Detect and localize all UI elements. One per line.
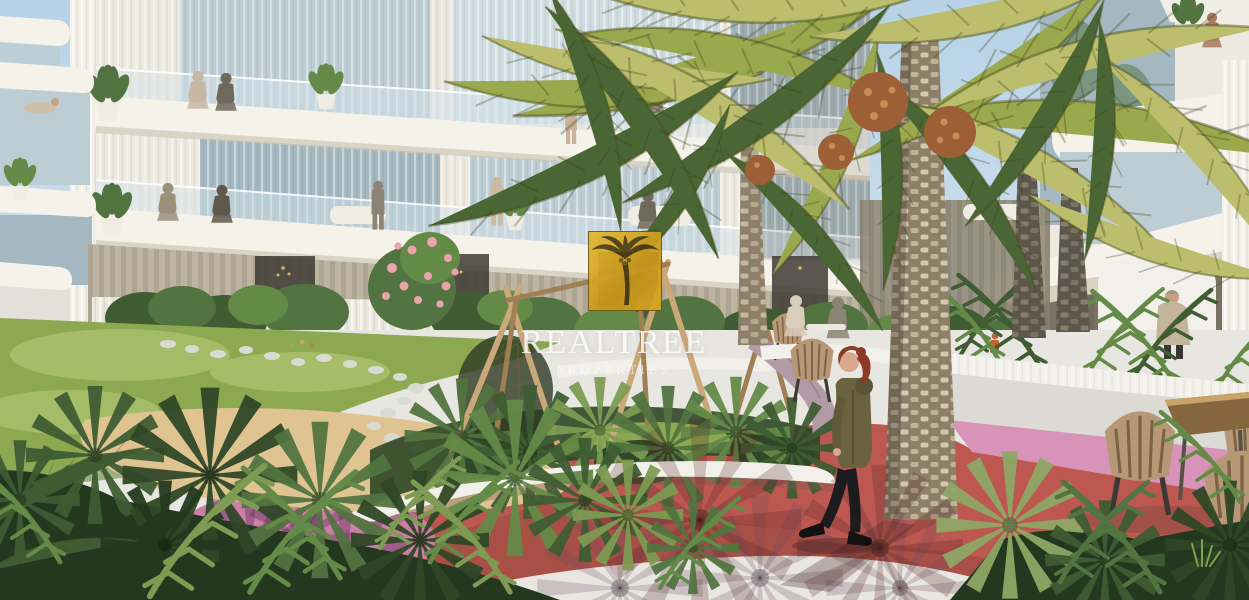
watermark-tagline: PROPERTIES [464, 362, 764, 378]
watermark-brand: REALTREE [464, 324, 764, 362]
brand-logo [588, 231, 662, 311]
courtyard-render: REALTREE PROPERTIES [0, 0, 1249, 600]
palm-tree-icon [589, 232, 661, 310]
